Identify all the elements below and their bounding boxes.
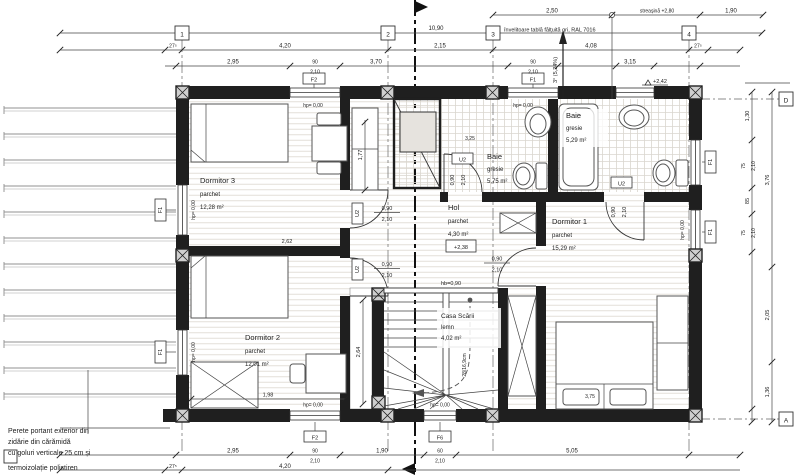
window-tag-f1-right2: F1: [702, 221, 716, 243]
dim: 3,76: [765, 175, 771, 186]
dim-window-h: 2,10: [310, 459, 320, 465]
window-bottom-f2: [290, 411, 340, 420]
section-flag-bottom: [402, 463, 415, 475]
sill-label: hp= 0,00: [191, 200, 197, 220]
bed-dormitor2: [191, 256, 288, 318]
roof-note: învelitoare tablă fălțuită gri, RAL 7016: [503, 28, 596, 34]
grid-axis-4: 4: [687, 32, 691, 39]
dim-window-w: 90: [312, 60, 318, 66]
dim: 2,62: [282, 239, 293, 245]
door-tag: U2: [618, 182, 625, 188]
dim-eave-b: 1,90: [725, 9, 737, 15]
window-tag: F1: [708, 229, 714, 235]
roof-note-group: învelitoare tablă fălțuită gri, RAL 7016: [503, 28, 596, 34]
door-width: 0,90: [382, 206, 393, 212]
dim-window-h: 2,10: [310, 70, 320, 76]
door-tag: U2: [355, 210, 361, 217]
toilet-icon-baie2: [653, 160, 688, 186]
dim: 3,25: [465, 136, 475, 142]
sink-icon-baie1: [525, 107, 551, 137]
dim: 75: [741, 163, 747, 169]
step-note: 28/16,9cm: [462, 353, 468, 376]
room-area: 4,30 m²: [448, 232, 468, 238]
room-finish: parchet: [200, 192, 220, 198]
plan-svg: Dormitor 3 parchet 12,28 m² Dormitor 2 p…: [0, 0, 795, 476]
window-left-1: [178, 185, 187, 235]
rafter-lines: [4, 106, 176, 400]
dim: 1,90: [376, 449, 388, 455]
dim: 1,98: [263, 393, 274, 399]
dim: 2,64: [356, 347, 362, 358]
room-label-baie2: Baie gresie 5,29 m²: [562, 109, 608, 147]
door-height: 2,10: [461, 175, 467, 186]
room-name: Dormitor 3: [200, 176, 235, 185]
level-value: +2,42: [653, 79, 667, 85]
dimension-rows-bottom: 2,95 90 2,10 1,90 60 2,10 5,05 27⁵ 4,20: [60, 449, 740, 471]
dim-window-w: 90: [312, 449, 318, 455]
room-finish: lemn: [441, 325, 454, 331]
dim: 3,75: [585, 394, 595, 400]
stair-balustrade: [384, 288, 498, 293]
window-tag-f2-bottom: F2: [304, 422, 326, 442]
dim-window-h: 2,10: [435, 459, 445, 465]
closet-stairs: [508, 296, 536, 396]
dim: 1,36: [765, 387, 771, 398]
door-height: 2,10: [622, 207, 628, 218]
window-tag: F2: [311, 78, 317, 84]
room-area: 4,02 m²: [441, 336, 461, 342]
room-name: Baie: [487, 152, 502, 161]
room-name: Casa Scării: [441, 313, 474, 320]
window-tag: F2: [312, 436, 318, 442]
dimension-rows-top: 2,50 streașină +2,80 1,90 10,90 27⁵ 4,20…: [60, 9, 763, 100]
sink-icon-baie2: [619, 105, 649, 129]
room-name: Hol: [448, 203, 460, 212]
pergola-rafters: [4, 106, 176, 463]
door-width: 0,90: [492, 257, 503, 263]
wall-note-line: zidărie din cărămidă: [8, 439, 71, 446]
dim: 75: [741, 230, 747, 236]
dim: 2,95: [227, 449, 239, 455]
dim-total-width: 10,90: [428, 26, 444, 32]
window-top-f1: [508, 88, 558, 97]
grid-axis-A: A: [784, 418, 789, 425]
room-finish: parchet: [448, 219, 468, 225]
grid-axis-1: 1: [180, 32, 184, 39]
dim-eave-a: 2,50: [546, 9, 558, 15]
dim-window-h: 2,10: [528, 70, 538, 76]
dim: 3,15: [624, 60, 636, 66]
window-tag: F1: [158, 349, 164, 355]
window-tag: F1: [708, 159, 714, 165]
dim: 2,10: [751, 228, 757, 238]
sill-label: hp= 0,00: [513, 103, 533, 109]
dim: 4,20: [279, 44, 291, 50]
level-value: +2,38: [454, 245, 468, 251]
room-finish: gresie: [487, 167, 504, 173]
wardrobe-dormitor2: [191, 362, 258, 408]
door-width: 0,90: [382, 262, 393, 268]
door-height: 2,10: [382, 273, 393, 279]
toilet-icon-baie1: [513, 163, 547, 189]
wardrobe-dormitor1: [657, 296, 688, 390]
room-area: 5,29 m²: [566, 138, 586, 144]
wall-note-line: Perete portant exterior din: [8, 428, 89, 435]
sill-label: hp= 0,00: [303, 403, 323, 409]
grid-axis-D: D: [784, 98, 789, 105]
dim-window-w: 60: [437, 449, 443, 455]
window-bottom-f6: [424, 411, 456, 420]
window-tag: F6: [437, 436, 443, 442]
dim: 3,70: [370, 60, 382, 66]
wall-note-line: termoizolație polistiren: [8, 465, 78, 472]
eave-note: streașină +2,80: [640, 9, 675, 15]
window-tag-f1-left2: F1: [155, 341, 176, 363]
bed-dormitor3: [191, 104, 288, 162]
dim: 85: [745, 198, 751, 204]
room-area: 5,75 m²: [487, 179, 507, 185]
dim-window-w: 90: [530, 60, 536, 66]
dim: 27⁵: [694, 44, 702, 50]
window-tag-f1-right1: F1: [702, 151, 716, 173]
room-name: Dormitor 1: [552, 217, 587, 226]
sill-label: hp= 0,00: [191, 342, 197, 362]
window-tag: F1: [530, 78, 536, 84]
room-area: 12,01 m²: [245, 362, 269, 368]
grid-bubbles-right: D A: [779, 92, 793, 426]
dim: 2,95: [227, 60, 239, 66]
sill-label: hp= 0,00: [430, 403, 450, 409]
dim: 4,20: [279, 464, 291, 470]
dim: 5,05: [566, 449, 578, 455]
dim: 1,77: [358, 150, 364, 161]
door-tag: U2: [355, 266, 361, 273]
wardrobe-hall: [500, 213, 536, 233]
window-right-2: [691, 210, 700, 250]
dim: 27⁵: [169, 44, 177, 50]
room-name: Dormitor 2: [245, 333, 280, 342]
window-tag-f1-left1: F1: [155, 199, 176, 221]
wall-note-line: cu goluri verticale 25 cm și: [8, 450, 91, 457]
room-area: 12,28 m²: [200, 205, 224, 211]
ventilation-shaft: [394, 99, 440, 188]
door-tag: U2: [459, 158, 466, 164]
notes: Perete portant exterior din zidărie din …: [8, 428, 91, 472]
window-tag-f6-bottom: F6: [429, 422, 451, 442]
window-top-baie2: [616, 88, 654, 97]
door-width: 0,90: [611, 207, 617, 218]
door-height: 2,10: [382, 217, 393, 223]
sill-label: hp= 0,00: [303, 103, 323, 109]
dim: 2,05: [765, 310, 771, 321]
room-finish: parchet: [552, 233, 572, 239]
bed-dormitor1: [556, 322, 653, 409]
grid-axis-3: 3: [491, 32, 495, 39]
slope-label: 3° (5,24%): [553, 57, 559, 83]
room-area: 15,29 m²: [552, 246, 576, 252]
grid-axis-2: 2: [386, 32, 390, 39]
sill-label: hp= 0,00: [680, 220, 686, 240]
room-finish: gresie: [566, 126, 583, 132]
window-tag: F1: [158, 207, 164, 213]
dim: 27⁵: [169, 464, 177, 470]
window-top-f2: [290, 88, 340, 97]
dim: 4,08: [585, 44, 597, 50]
window-left-2: [178, 330, 187, 375]
parapet-height: hb=0,90: [441, 281, 461, 287]
room-finish: parchet: [245, 349, 265, 355]
door-width: 0,90: [450, 175, 456, 186]
dim: 2,15: [434, 44, 446, 50]
section-flag-top: [415, 1, 428, 13]
room-name: Baie: [566, 111, 581, 120]
dim: 2,10: [751, 161, 757, 171]
floor-plan-drawing: Dormitor 3 parchet 12,28 m² Dormitor 2 p…: [0, 0, 795, 476]
window-right-1: [691, 140, 700, 185]
attic-level-mark: +2,42: [642, 79, 668, 85]
dim: 1,30: [745, 111, 751, 122]
door-height: 2,10: [492, 268, 503, 274]
